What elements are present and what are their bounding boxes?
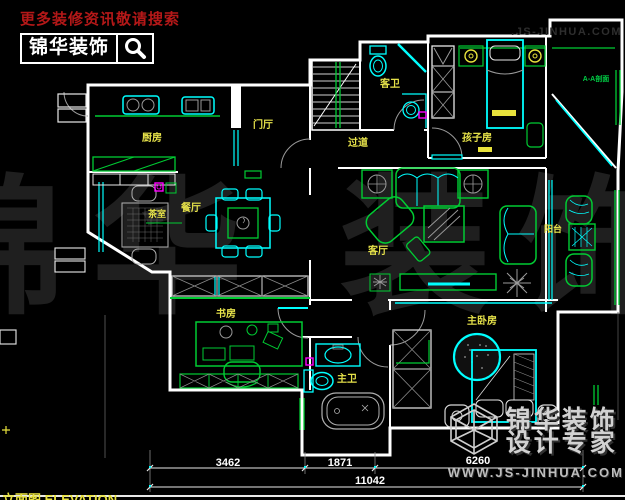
room-label-guest-bath: 客卫 bbox=[379, 77, 400, 90]
room-label-hallway: 过道 bbox=[348, 136, 368, 149]
room-label-master-bath: 主卫 bbox=[337, 372, 357, 385]
bottom-right-branding: 锦华装饰 设计专家 WWW.JS-JINHUA.COM bbox=[448, 401, 625, 480]
room-label-balcony: 阳台 bbox=[544, 223, 562, 234]
floorplan-sheet: 锦华 装饰 bbox=[0, 0, 625, 500]
room-label-dining: 餐厅 bbox=[180, 201, 201, 214]
room-label-kids-room: 孩子房 bbox=[462, 131, 492, 144]
search-icon bbox=[118, 35, 152, 62]
jinhua-logo-text: 锦华装饰 bbox=[22, 35, 118, 62]
room-label-tea-room: 茶室 bbox=[147, 208, 166, 219]
search-tagline: 更多装修资讯敬请搜索 bbox=[20, 8, 180, 29]
center-watermark-text: 锦华 装饰 bbox=[0, 164, 625, 332]
room-label-kitchen: 厨房 bbox=[142, 131, 162, 144]
top-right-watermark: .JS-JINHUA.COM bbox=[511, 26, 622, 38]
room-label-foyer: 门厅 bbox=[253, 118, 273, 131]
top-left-branding: 更多装修资讯敬请搜索 锦华装饰 bbox=[20, 8, 180, 64]
section-mark-label: A-A剖面 bbox=[583, 74, 609, 83]
drawing-title: 立面图 ELEVATION bbox=[2, 492, 117, 500]
room-label-living: 客厅 bbox=[367, 244, 388, 257]
dim-seg2: 1871 bbox=[328, 457, 352, 469]
room-label-study: 书房 bbox=[216, 307, 236, 320]
dim-seg1: 3462 bbox=[216, 457, 240, 469]
jinhua-logo-box: 锦华装饰 bbox=[20, 33, 154, 64]
brand-website: WWW.JS-JINHUA.COM bbox=[448, 465, 625, 480]
cube-logo-icon bbox=[448, 401, 500, 462]
room-label-master-bedroom: 主卧房 bbox=[467, 314, 497, 327]
brand-slogan: 设计专家 bbox=[506, 432, 618, 455]
dim-total: 11042 bbox=[355, 475, 385, 487]
